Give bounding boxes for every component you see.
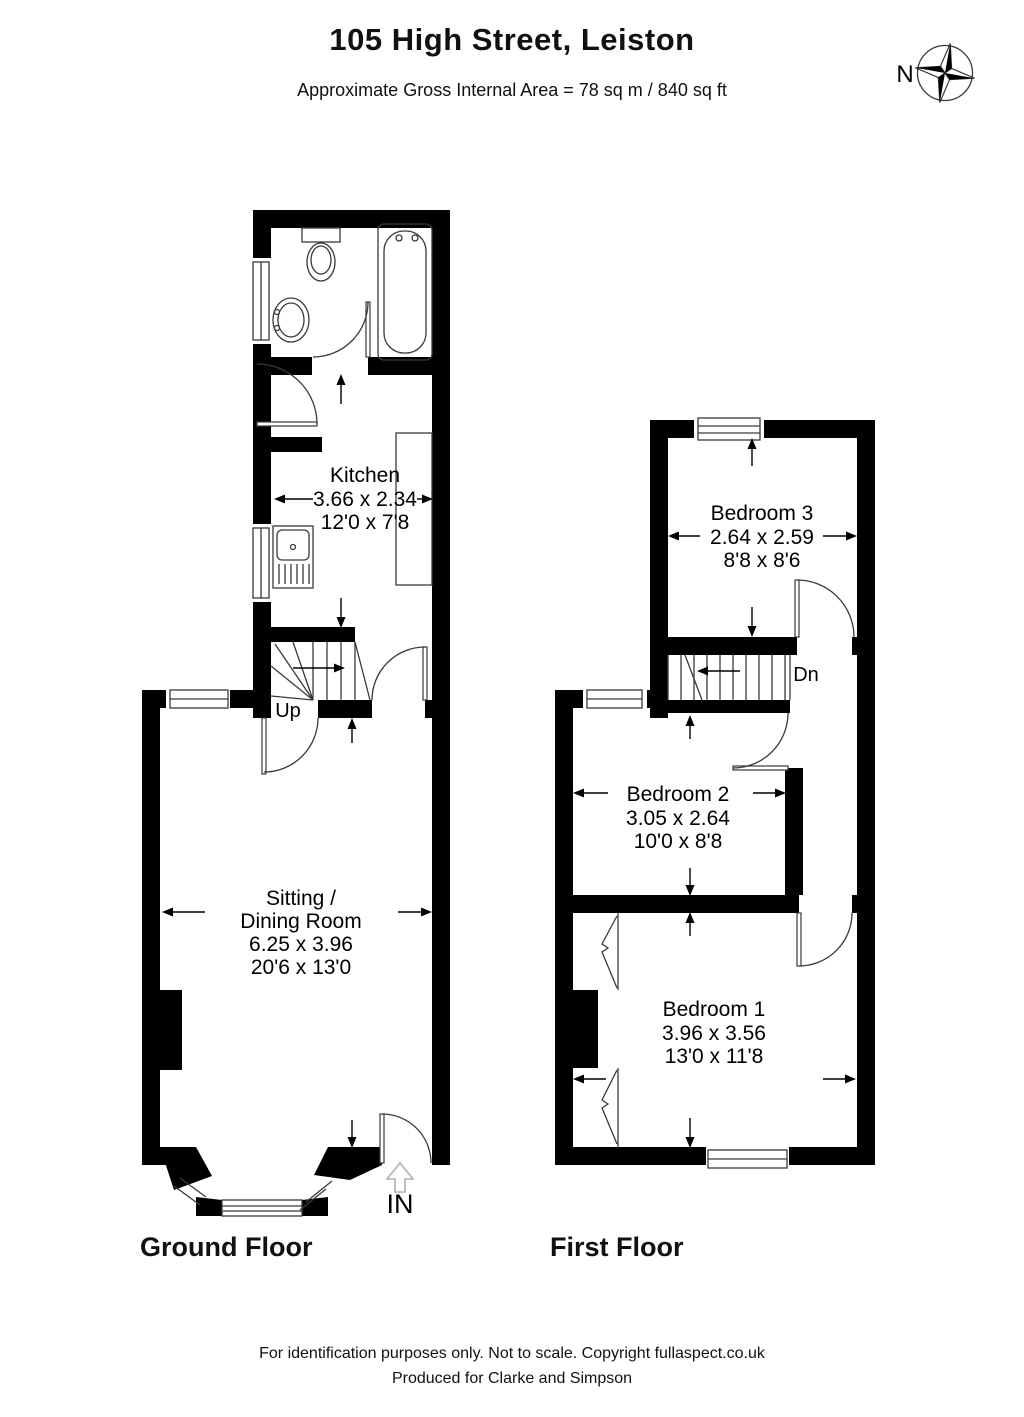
bathroom-sink <box>273 298 309 342</box>
bedroom1-imperial: 13'0 x 11'8 <box>665 1045 764 1068</box>
door-arc <box>372 647 427 700</box>
door-arc <box>262 718 318 774</box>
entrance-in-label: IN <box>387 1189 414 1219</box>
wardrobe-alcove <box>602 913 618 990</box>
footer-line1: For identification purposes only. Not to… <box>0 1342 1024 1367</box>
wall <box>555 1147 710 1165</box>
wall <box>852 637 875 655</box>
stairs-dn-label: Dn <box>793 664 819 686</box>
front-door <box>380 1114 431 1163</box>
wall <box>425 700 450 718</box>
floorplan-svg: N <box>0 0 1024 1417</box>
first-floor-label: First Floor <box>550 1232 684 1263</box>
wardrobe-alcove <box>602 1068 618 1147</box>
floorplan-page: 105 High Street, Leiston Approximate Gro… <box>0 0 1024 1417</box>
door-arc <box>795 580 854 637</box>
door-arc <box>797 913 852 966</box>
kitchen-sink-unit <box>273 526 313 588</box>
compass-icon: N <box>896 44 974 103</box>
wall <box>785 768 803 895</box>
wall <box>555 895 799 913</box>
bay-wall <box>302 1197 328 1216</box>
window <box>249 258 275 344</box>
bathtub <box>378 224 432 360</box>
kitchen-metric: 3.66 x 2.34 <box>313 488 417 511</box>
compass-north-label: N <box>896 61 913 88</box>
bedroom2-metric: 3.05 x 2.64 <box>626 807 730 830</box>
bedroom2-imperial: 10'0 x 8'8 <box>634 830 723 853</box>
wall <box>650 637 797 655</box>
door-arc <box>313 302 370 357</box>
staircase-ground <box>271 642 370 700</box>
wall <box>253 700 264 718</box>
bedroom3-name: Bedroom 3 <box>711 502 814 525</box>
ground-floor-plan: Kitchen 3.66 x 2.34 12'0 x 7'8 Sitting /… <box>142 210 450 1219</box>
wall <box>142 690 160 1165</box>
wall <box>432 210 450 1165</box>
chimney-breast <box>160 990 182 1070</box>
sitting-name-1: Sitting / <box>266 887 336 910</box>
sitting-metric: 6.25 x 3.96 <box>249 933 353 956</box>
bay-wall <box>196 1197 222 1216</box>
footer: For identification purposes only. Not to… <box>0 1342 1024 1392</box>
kitchen-imperial: 12'0 x 7'8 <box>321 511 410 534</box>
window <box>166 686 230 712</box>
first-floor-plan: Bedroom 3 2.64 x 2.59 8'8 x 8'6 Bedroom … <box>555 414 875 1170</box>
sitting-name-2: Dining Room <box>240 910 361 933</box>
kitchen-name: Kitchen <box>330 464 400 487</box>
staircase-first <box>668 655 790 700</box>
wall <box>253 357 312 375</box>
toilet <box>302 228 340 281</box>
window <box>694 414 764 444</box>
bedroom2-name: Bedroom 2 <box>627 783 730 806</box>
sitting-imperial: 20'6 x 13'0 <box>251 956 351 979</box>
wall <box>271 437 322 452</box>
stairs-up-label: Up <box>275 700 301 722</box>
entrance-in-arrow-icon <box>387 1163 413 1192</box>
wall <box>852 895 875 913</box>
wall <box>857 420 875 1165</box>
bay-wall <box>314 1147 382 1180</box>
wall <box>650 700 790 713</box>
door-arc <box>733 713 788 770</box>
wall <box>253 627 355 642</box>
bedroom3-metric: 2.64 x 2.59 <box>710 526 814 549</box>
wall <box>555 690 573 1165</box>
window <box>706 1146 789 1170</box>
wall <box>650 420 668 718</box>
bedroom1-name: Bedroom 1 <box>663 998 766 1021</box>
footer-line2: Produced for Clarke and Simpson <box>0 1367 1024 1392</box>
wall <box>787 1147 875 1165</box>
wall <box>253 210 450 228</box>
bay-wall <box>160 1147 212 1190</box>
bedroom3-imperial: 8'8 x 8'6 <box>724 549 801 572</box>
window <box>249 524 275 602</box>
bedroom1-metric: 3.96 x 3.56 <box>662 1022 766 1045</box>
wall <box>318 700 372 718</box>
chimney-breast <box>573 990 598 1068</box>
ground-floor-label: Ground Floor <box>140 1232 312 1263</box>
window <box>583 686 647 712</box>
